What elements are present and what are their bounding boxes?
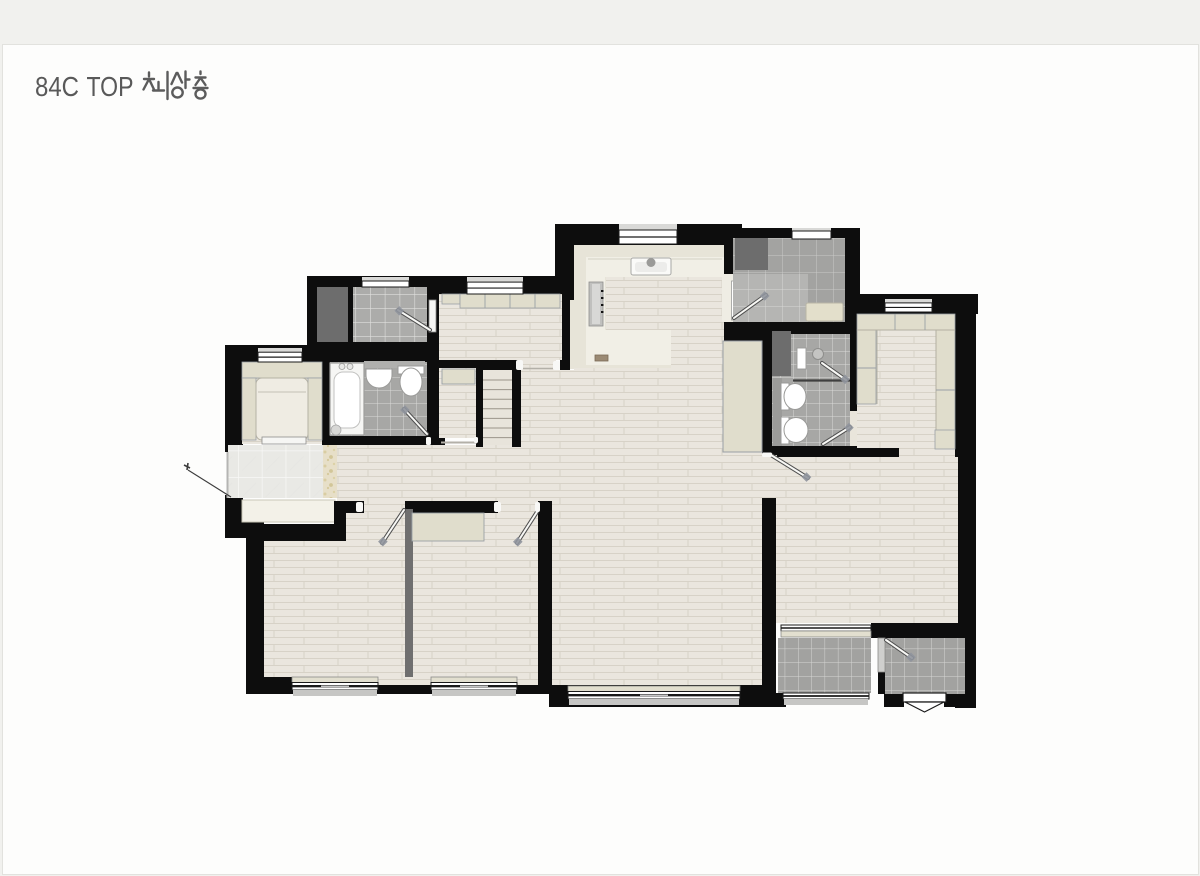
- svg-text:84C: 84C: [35, 71, 79, 102]
- svg-text:TOP: TOP: [87, 71, 134, 102]
